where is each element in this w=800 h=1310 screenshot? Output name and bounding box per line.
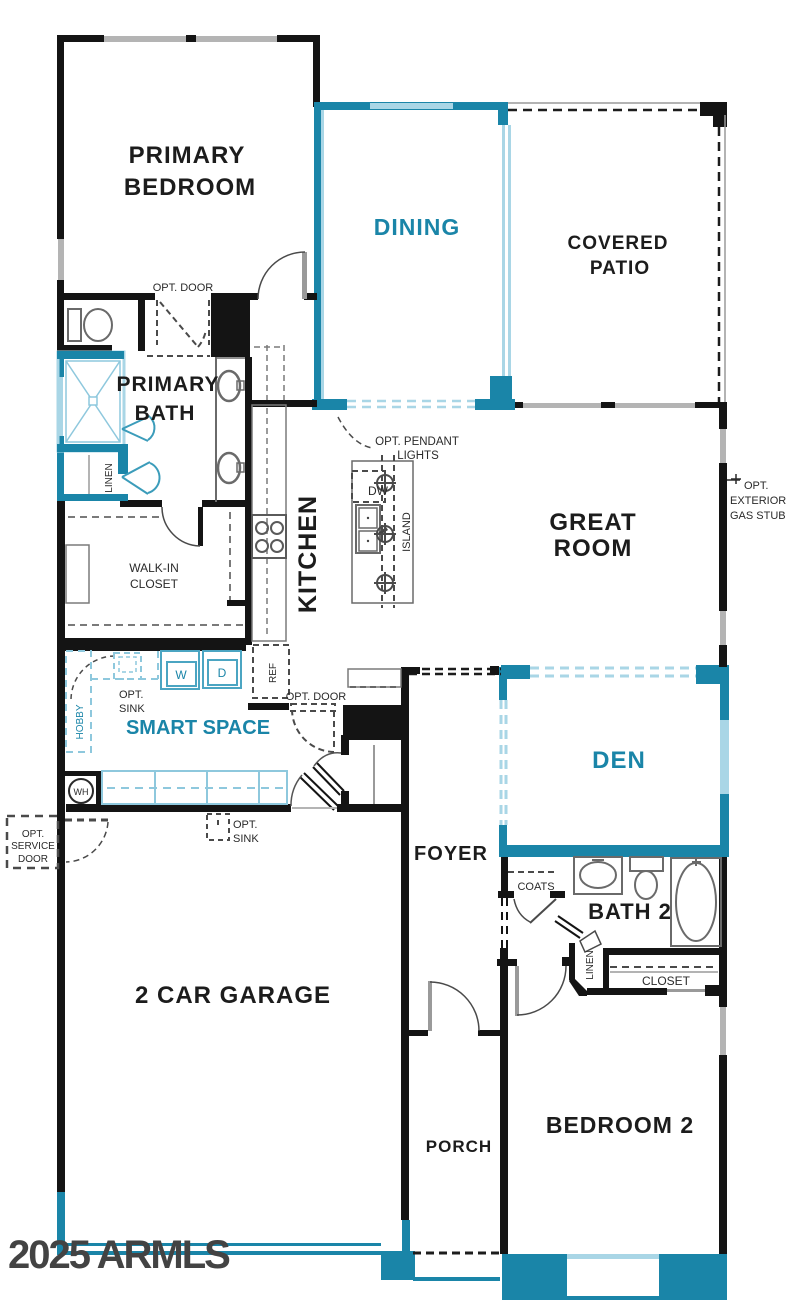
svg-text:CLOSET: CLOSET: [130, 577, 179, 591]
svg-text:PRIMARY: PRIMARY: [116, 373, 219, 396]
svg-text:W: W: [175, 668, 187, 682]
svg-text:D: D: [218, 666, 227, 680]
svg-text:PRIMARY: PRIMARY: [129, 142, 246, 169]
svg-text:OPT. PENDANT: OPT. PENDANT: [375, 436, 459, 448]
svg-text:OPT. DOOR: OPT. DOOR: [153, 282, 214, 294]
svg-text:SERVICE: SERVICE: [11, 841, 55, 852]
svg-text:HOBBY: HOBBY: [75, 704, 86, 739]
svg-text:COVERED: COVERED: [568, 233, 669, 254]
svg-text:OPT.: OPT.: [119, 689, 143, 701]
svg-text:2025 ARMLS: 2025 ARMLS: [8, 1233, 230, 1277]
svg-text:KITCHEN: KITCHEN: [294, 495, 322, 613]
svg-text:REF: REF: [268, 663, 279, 683]
svg-text:GAS STUB: GAS STUB: [730, 510, 786, 522]
svg-text:2 CAR GARAGE: 2 CAR GARAGE: [135, 982, 331, 1009]
svg-text:GREAT: GREAT: [549, 509, 636, 536]
svg-text:FOYER: FOYER: [414, 843, 488, 865]
svg-text:DEN: DEN: [592, 747, 646, 774]
svg-text:DOOR: DOOR: [18, 854, 48, 865]
svg-text:OPT.: OPT.: [22, 829, 44, 840]
svg-text:OPT.: OPT.: [233, 819, 257, 831]
svg-text:SMART SPACE: SMART SPACE: [126, 717, 270, 739]
svg-text:EXTERIOR: EXTERIOR: [730, 495, 786, 507]
svg-text:ROOM: ROOM: [554, 535, 633, 562]
svg-text:PATIO: PATIO: [590, 258, 650, 279]
svg-text:BATH 2: BATH 2: [588, 899, 672, 924]
svg-text:WH: WH: [74, 787, 89, 797]
svg-text:OPT. DOOR: OPT. DOOR: [286, 691, 347, 703]
svg-text:OPT.: OPT.: [744, 480, 768, 492]
svg-text:COATS: COATS: [517, 881, 554, 893]
svg-text:SINK: SINK: [233, 833, 259, 845]
svg-text:LINEN: LINEN: [585, 950, 596, 979]
svg-text:SINK: SINK: [119, 703, 145, 715]
svg-text:LIGHTS: LIGHTS: [397, 450, 439, 462]
svg-text:LINEN: LINEN: [104, 463, 115, 492]
svg-text:WALK-IN: WALK-IN: [129, 561, 179, 575]
svg-text:BEDROOM 2: BEDROOM 2: [546, 1112, 694, 1138]
svg-text:DW: DW: [368, 484, 389, 498]
svg-text:CLOSET: CLOSET: [642, 974, 691, 988]
svg-text:DINING: DINING: [374, 214, 461, 240]
svg-text:ISLAND: ISLAND: [401, 512, 413, 552]
svg-text:BEDROOM: BEDROOM: [124, 174, 256, 201]
svg-text:BATH: BATH: [135, 402, 196, 425]
svg-text:PORCH: PORCH: [426, 1137, 492, 1156]
